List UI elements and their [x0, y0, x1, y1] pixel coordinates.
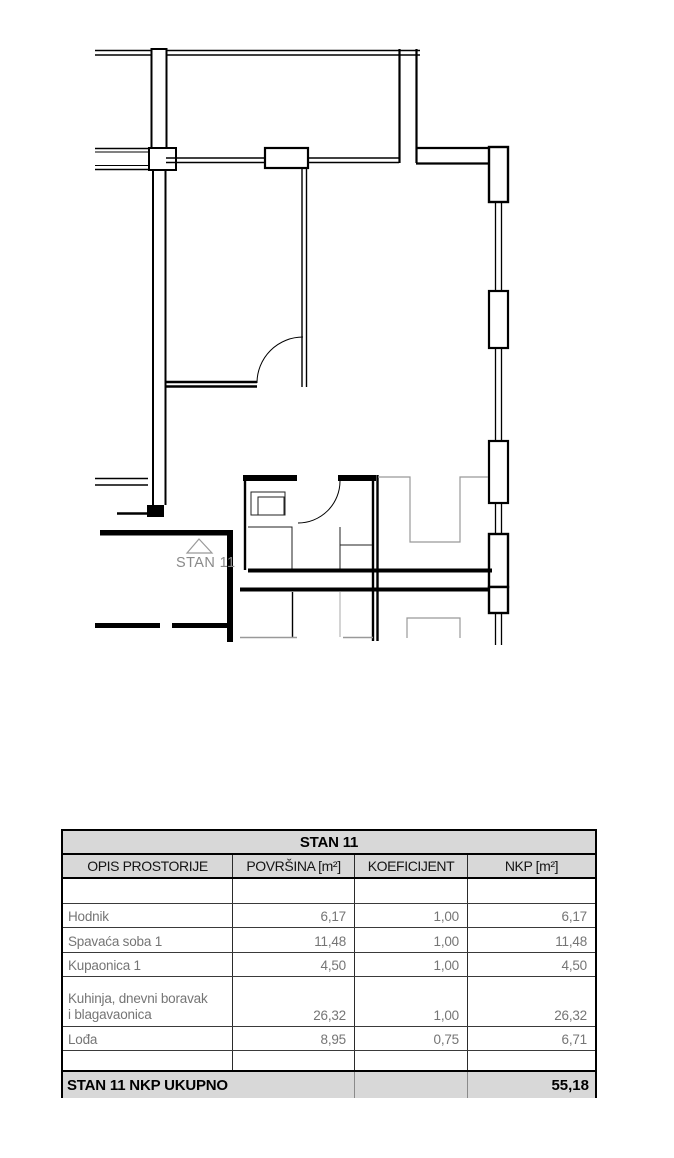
bathroom-door-arc	[298, 481, 340, 523]
room-area: 11,48	[232, 928, 354, 952]
bathroom-fixtures	[248, 492, 372, 569]
bedroom-west-wall	[95, 170, 166, 517]
adjacent-apartment-lines	[240, 592, 460, 638]
empty-row	[63, 1051, 595, 1072]
table-row-lodja: Lođa 8,95 0,75 6,71	[63, 1027, 595, 1051]
room-name: Spavaća soba 1	[63, 928, 232, 952]
floor-plan-sheet: STAN 11 STAN 11 OPIS PROSTORIJE POVRŠINA…	[0, 0, 674, 1158]
left-structural-wall	[95, 49, 176, 170]
col-header-nkp: NKP [m²]	[467, 855, 595, 877]
room-name: Lođa	[63, 1027, 232, 1050]
total-coef-empty	[354, 1072, 467, 1098]
kitchen-counter-outline	[378, 477, 488, 542]
room-area: 8,95	[232, 1027, 354, 1050]
top-wall	[95, 51, 420, 56]
room-coef: 1,00	[354, 904, 467, 927]
room-nkp: 6,17	[467, 904, 595, 927]
east-window-wall	[489, 202, 508, 645]
room-area: 4,50	[232, 953, 354, 976]
col-header-povrsina: POVRŠINA [m²]	[232, 855, 354, 877]
room-coef: 1,00	[354, 953, 467, 976]
room-nkp: 6,71	[467, 1027, 595, 1050]
total-value: 55,18	[467, 1072, 595, 1098]
room-coef: 1,00	[354, 977, 467, 1026]
room-coef: 1,00	[354, 928, 467, 952]
area-table: STAN 11 OPIS PROSTORIJE POVRŠINA [m²] KO…	[61, 829, 597, 1098]
sink-counter	[251, 492, 285, 515]
room-area: 6,17	[232, 904, 354, 927]
sink-basin	[258, 497, 284, 515]
table-header-row: OPIS PROSTORIJE POVRŠINA [m²] KOEFICIJEN…	[63, 855, 595, 879]
table-row-spavaca-soba: Spavaća soba 1 11,48 1,00 11,48	[63, 928, 595, 953]
room-name: Hodnik	[63, 904, 232, 927]
table-row-kupaonica: Kupaonica 1 4,50 1,00 4,50	[63, 953, 595, 977]
table-row-hodnik: Hodnik 6,17 1,00 6,17	[63, 904, 595, 928]
loggia-pier	[489, 534, 508, 587]
bathroom-walls	[243, 475, 378, 570]
room-area: 26,32	[232, 977, 354, 1026]
northeast-walls	[400, 49, 509, 202]
bedroom-north-partition	[166, 148, 399, 168]
window-2	[489, 441, 508, 503]
bedroom-east-partition	[166, 168, 307, 387]
entrance-marker-icon	[187, 539, 212, 553]
plan-unit-label: STAN 11	[176, 555, 235, 571]
total-label: STAN 11 NKP UKUPNO	[63, 1072, 354, 1098]
room-name: Kuhinja, dnevni boravak i blagavaonica	[63, 977, 232, 1026]
table-title: STAN 11	[63, 831, 595, 855]
shower-enclosure	[248, 527, 292, 569]
loggia-walls	[240, 570, 492, 641]
table-row-kuhinja: Kuhinja, dnevni boravak i blagavaonica 2…	[63, 977, 595, 1027]
room-nkp: 11,48	[467, 928, 595, 952]
room-coef: 0,75	[354, 1027, 467, 1050]
col-header-koeficijent: KOEFICIJENT	[354, 855, 467, 877]
room-name: Kupaonica 1	[63, 953, 232, 976]
room-nkp: 4,50	[467, 953, 595, 976]
col-header-opis: OPIS PROSTORIJE	[63, 855, 232, 877]
floor-plan: STAN 11	[0, 0, 674, 700]
entrance-walls	[95, 530, 233, 642]
table-total-row: STAN 11 NKP UKUPNO 55,18	[63, 1072, 595, 1098]
room-nkp: 26,32	[467, 977, 595, 1026]
empty-row	[63, 879, 595, 904]
bedroom-door-arc	[257, 337, 303, 383]
window-1	[489, 291, 508, 348]
